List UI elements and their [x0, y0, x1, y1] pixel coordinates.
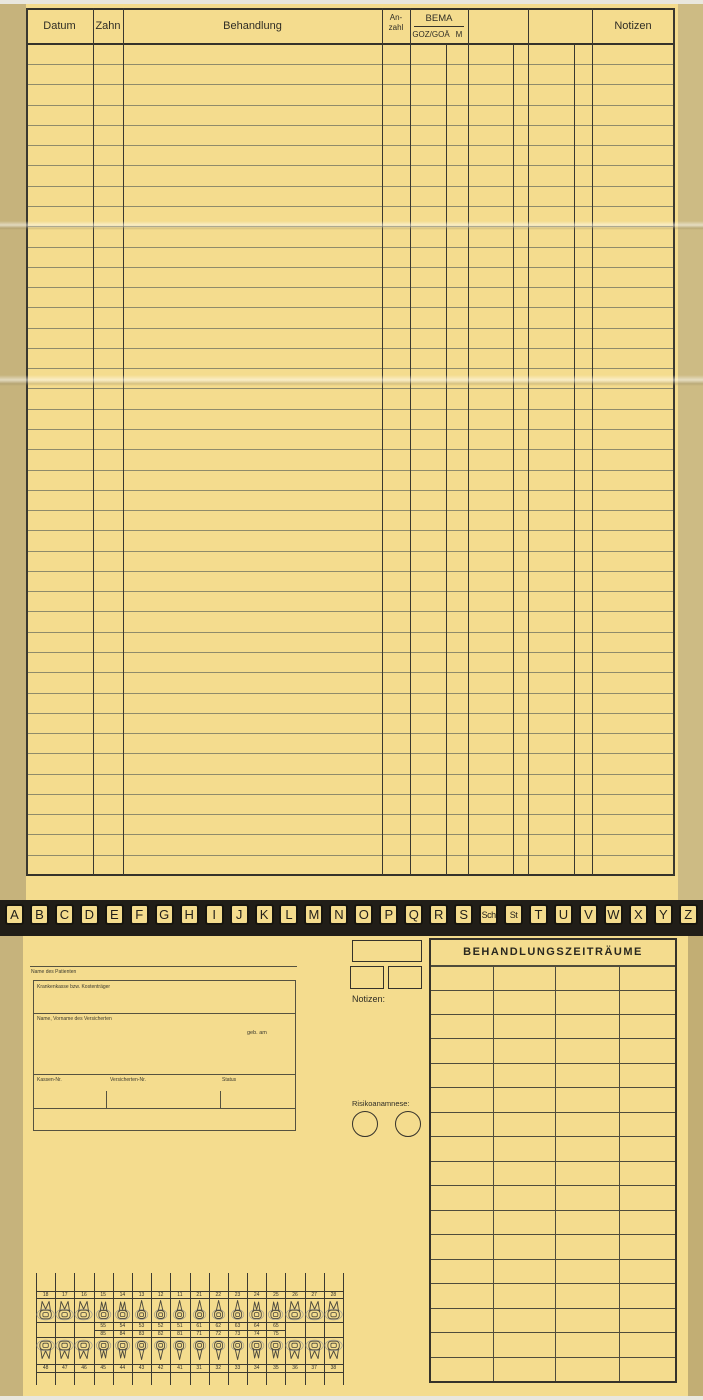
tooth-number-65: 65: [266, 1323, 285, 1329]
bz-row-line: [431, 1308, 675, 1309]
bz-row-line: [431, 1210, 675, 1211]
insurance-box-divider-2: [34, 1074, 295, 1075]
register-tab-o: O: [354, 904, 373, 925]
register-tab-z: Z: [679, 904, 698, 925]
notizen-label: Notizen:: [352, 994, 385, 1004]
tooth-icon-28: [324, 1298, 343, 1321]
register-tab-b: B: [30, 904, 49, 925]
tooth-icon-32: [209, 1339, 228, 1362]
col-header-datum: Datum: [26, 20, 93, 32]
col-header-behandlung: Behandlung: [123, 20, 382, 32]
table-column-line: [574, 44, 575, 875]
tooth-number-33: 33: [228, 1365, 247, 1371]
tooth-number-74: 74: [247, 1331, 266, 1337]
tooth-number-37: 37: [305, 1365, 324, 1371]
table-header-column-line: [123, 8, 124, 44]
tooth-number-83: 83: [132, 1331, 151, 1337]
tooth-icon-18: [36, 1298, 55, 1321]
patient-name-line: [30, 966, 297, 967]
tooth-icon-25: [266, 1298, 285, 1321]
tooth-number-24: 24: [247, 1292, 266, 1298]
tooth-number-13: 13: [132, 1292, 151, 1298]
col-header-zahn: Zahn: [93, 20, 123, 32]
tooth-number-35: 35: [266, 1365, 285, 1371]
tooth-number-47: 47: [55, 1365, 74, 1371]
tooth-number-23: 23: [228, 1292, 247, 1298]
tooth-icon-42: [151, 1339, 170, 1362]
tooth-icon-48: [36, 1339, 55, 1362]
register-tab-d: D: [80, 904, 99, 925]
risiko-circle-1: [352, 1111, 378, 1137]
tooth-number-44: 44: [113, 1365, 132, 1371]
card-left-edge: [0, 0, 26, 900]
register-tab-v: V: [579, 904, 598, 925]
kassen-tick: [106, 1091, 107, 1108]
tooth-number-16: 16: [74, 1292, 93, 1298]
tooth-icon-33: [228, 1339, 247, 1362]
tooth-icon-35: [266, 1339, 285, 1362]
bottom-card-left-edge: [0, 936, 23, 1400]
insurance-box: Krankenkasse bzw. Kostenträger Name, Vor…: [33, 980, 296, 1131]
tooth-number-36: 36: [285, 1365, 304, 1371]
register-tab-j: J: [230, 904, 249, 925]
table-header-column-line: [410, 8, 411, 44]
register-tab-a: A: [5, 904, 24, 925]
photo-bottom-sliver: [0, 1396, 703, 1400]
status-label: Status: [222, 1077, 236, 1083]
register-tab-l: L: [279, 904, 298, 925]
col-header-bema: BEMA: [410, 13, 468, 24]
register-tab-t: T: [529, 904, 548, 925]
tooth-icon-22: [209, 1298, 228, 1321]
tooth-icon-34: [247, 1339, 266, 1362]
col-header-goz-goa: GOZ/GOÄ: [410, 30, 452, 39]
tooth-number-48: 48: [36, 1365, 55, 1371]
tooth-number-11: 11: [170, 1292, 189, 1298]
alphabet-register-band: ABCDEFGHIJKLMNOPQRSSchStTUVWXYZ: [0, 900, 703, 936]
tooth-number-62: 62: [209, 1323, 228, 1329]
tooth-icon-43: [132, 1339, 151, 1362]
tooth-icon-15: [94, 1298, 113, 1321]
patient-name-label: Name des Patienten: [31, 969, 76, 975]
table-column-line: [410, 44, 411, 875]
tooth-number-46: 46: [74, 1365, 93, 1371]
register-tab-n: N: [329, 904, 348, 925]
bz-row-line: [431, 1161, 675, 1162]
table-column-line: [26, 44, 28, 875]
col-header-anzahl-1: An-: [382, 14, 410, 23]
table-column-line: [673, 44, 675, 875]
behandlungszeitraeume-table: BEHANDLUNGSZEITRÄUME: [429, 938, 677, 1383]
tooth-icon-47: [55, 1339, 74, 1362]
kassen-nr-label: Kassen-Nr.: [37, 1077, 62, 1083]
table-column-line: [446, 44, 447, 875]
tooth-number-27: 27: [305, 1292, 324, 1298]
bz-header-line: [431, 965, 675, 967]
tooth-number-55: 55: [94, 1323, 113, 1329]
card-right-edge: [678, 0, 703, 900]
tooth-number-42: 42: [151, 1365, 170, 1371]
behandlungszeitraeume-title: BEHANDLUNGSZEITRÄUME: [431, 946, 675, 958]
bz-row-line: [431, 1136, 675, 1137]
col-header-notizen: Notizen: [592, 20, 674, 32]
tooth-icon-37: [305, 1339, 324, 1362]
chart-horizontal-line: [36, 1337, 343, 1338]
photo-top-sliver: [0, 0, 703, 4]
register-tab-w: W: [604, 904, 623, 925]
tooth-number-84: 84: [113, 1331, 132, 1337]
patient-record-card-scan: Datum Zahn Behandlung An- zahl BEMA GOZ/…: [0, 0, 703, 1400]
fold-crease-lower: [0, 375, 703, 386]
geb-am-label: geb. am: [247, 1030, 267, 1036]
tooth-icon-44: [113, 1339, 132, 1362]
table-column-line: [382, 44, 383, 875]
tooth-icon-27: [305, 1298, 324, 1321]
table-header-column-line: [673, 8, 675, 44]
tooth-number-43: 43: [132, 1365, 151, 1371]
register-tab-c: C: [55, 904, 74, 925]
tooth-number-31: 31: [190, 1365, 209, 1371]
register-tab-f: F: [130, 904, 149, 925]
tooth-icon-17: [55, 1298, 74, 1321]
bz-row-line: [431, 1038, 675, 1039]
tooth-number-38: 38: [324, 1365, 343, 1371]
table-column-line: [513, 44, 514, 875]
tooth-number-26: 26: [285, 1292, 304, 1298]
tooth-icon-45: [94, 1339, 113, 1362]
bottom-card-right-edge: [688, 936, 703, 1400]
register-tab-u: U: [554, 904, 573, 925]
register-tab-x: X: [629, 904, 648, 925]
table-header-column-line: [93, 8, 94, 44]
krankenkasse-label: Krankenkasse bzw. Kostenträger: [37, 984, 110, 990]
treatment-card: Datum Zahn Behandlung An- zahl BEMA GOZ/…: [0, 0, 703, 900]
bz-column-line: [493, 965, 494, 1381]
tooth-number-25: 25: [266, 1292, 285, 1298]
risiko-circle-2: [395, 1111, 421, 1137]
tooth-number-15: 15: [94, 1292, 113, 1298]
register-tab-s: S: [454, 904, 473, 925]
tooth-number-21: 21: [190, 1292, 209, 1298]
bz-column-line: [555, 965, 556, 1381]
register-tab-h: H: [180, 904, 199, 925]
tooth-number-63: 63: [228, 1323, 247, 1329]
versicherten-nr-label: Versicherten-Nr.: [110, 1077, 146, 1083]
risikoanamnese-label: Risikoanamnese:: [352, 1099, 410, 1108]
tooth-number-28: 28: [324, 1292, 343, 1298]
tooth-icon-16: [74, 1298, 93, 1321]
tooth-number-34: 34: [247, 1365, 266, 1371]
tooth-number-14: 14: [113, 1292, 132, 1298]
tooth-number-17: 17: [55, 1292, 74, 1298]
table-column-line: [528, 44, 529, 875]
register-tab-k: K: [255, 904, 274, 925]
register-tab-sch: Sch: [479, 904, 498, 925]
tooth-number-72: 72: [209, 1331, 228, 1337]
bz-row-line: [431, 1087, 675, 1088]
tooth-number-32: 32: [209, 1365, 228, 1371]
bz-row-line: [431, 1014, 675, 1015]
register-tab-g: G: [155, 904, 174, 925]
tooth-number-51: 51: [170, 1323, 189, 1329]
tooth-number-12: 12: [151, 1292, 170, 1298]
bz-row-line: [431, 990, 675, 991]
tooth-icon-12: [151, 1298, 170, 1321]
table-column-line: [592, 44, 593, 875]
bz-row-line: [431, 1357, 675, 1358]
status-tick: [220, 1091, 221, 1108]
table-header-column-line: [382, 8, 383, 44]
notizen-box-small-1: [350, 966, 384, 989]
col-header-anzahl-2: zahl: [382, 24, 410, 33]
tooth-number-61: 61: [190, 1323, 209, 1329]
versicherter-label: Name, Vorname des Versicherten: [37, 1016, 112, 1022]
register-tab-e: E: [105, 904, 124, 925]
table-header-column-line: [528, 8, 529, 44]
tooth-icon-36: [285, 1339, 304, 1362]
insurance-box-divider-1: [34, 1013, 295, 1014]
bz-column-line: [619, 965, 620, 1381]
tooth-icon-41: [170, 1339, 189, 1362]
table-column-line: [93, 44, 94, 875]
tooth-number-53: 53: [132, 1323, 151, 1329]
col-header-m: M: [450, 30, 468, 39]
tooth-number-52: 52: [151, 1323, 170, 1329]
tooth-number-82: 82: [151, 1331, 170, 1337]
bz-row-line: [431, 1063, 675, 1064]
tooth-number-64: 64: [247, 1323, 266, 1329]
register-tab-i: I: [205, 904, 224, 925]
table-column-line: [468, 44, 469, 875]
table-header-column-line: [26, 8, 28, 44]
chart-vertical-line: [343, 1273, 344, 1385]
notizen-box-small-2: [388, 966, 422, 989]
tooth-icon-23: [228, 1298, 247, 1321]
tooth-icon-13: [132, 1298, 151, 1321]
register-tab-st: St: [504, 904, 523, 925]
tooth-icon-21: [190, 1298, 209, 1321]
bz-row-line: [431, 1259, 675, 1260]
bema-underline: [414, 26, 464, 27]
tooth-icon-24: [247, 1298, 266, 1321]
tooth-number-45: 45: [94, 1365, 113, 1371]
tooth-number-71: 71: [190, 1331, 209, 1337]
table-header-column-line: [592, 8, 593, 44]
tooth-icon-46: [74, 1339, 93, 1362]
table-header-column-line: [468, 8, 469, 44]
bz-row-line: [431, 1112, 675, 1113]
tooth-icon-31: [190, 1339, 209, 1362]
register-tab-y: Y: [654, 904, 673, 925]
tooth-icon-38: [324, 1339, 343, 1362]
register-tab-r: R: [429, 904, 448, 925]
tooth-icon-26: [285, 1298, 304, 1321]
notizen-box-wide: [352, 940, 422, 962]
table-column-line: [123, 44, 124, 875]
insurance-box-divider-3: [34, 1108, 295, 1109]
tooth-number-22: 22: [209, 1292, 228, 1298]
tooth-number-75: 75: [266, 1331, 285, 1337]
register-tab-p: P: [379, 904, 398, 925]
bz-row-line: [431, 1185, 675, 1186]
tooth-number-81: 81: [170, 1331, 189, 1337]
tooth-icon-14: [113, 1298, 132, 1321]
tooth-number-73: 73: [228, 1331, 247, 1337]
bz-row-line: [431, 1332, 675, 1333]
tooth-number-18: 18: [36, 1292, 55, 1298]
tooth-number-41: 41: [170, 1365, 189, 1371]
register-tab-q: Q: [404, 904, 423, 925]
tooth-number-54: 54: [113, 1323, 132, 1329]
register-tab-m: M: [304, 904, 323, 925]
tooth-number-85: 85: [94, 1331, 113, 1337]
tooth-chart: 18 17 16 15 14 13 12 11 21: [36, 1273, 343, 1385]
chart-horizontal-line: [36, 1372, 343, 1373]
bz-row-line: [431, 1234, 675, 1235]
bz-row-line: [431, 1283, 675, 1284]
tooth-icon-11: [170, 1298, 189, 1321]
patient-data-card: Name des Patienten Krankenkasse bzw. Kos…: [0, 936, 703, 1400]
